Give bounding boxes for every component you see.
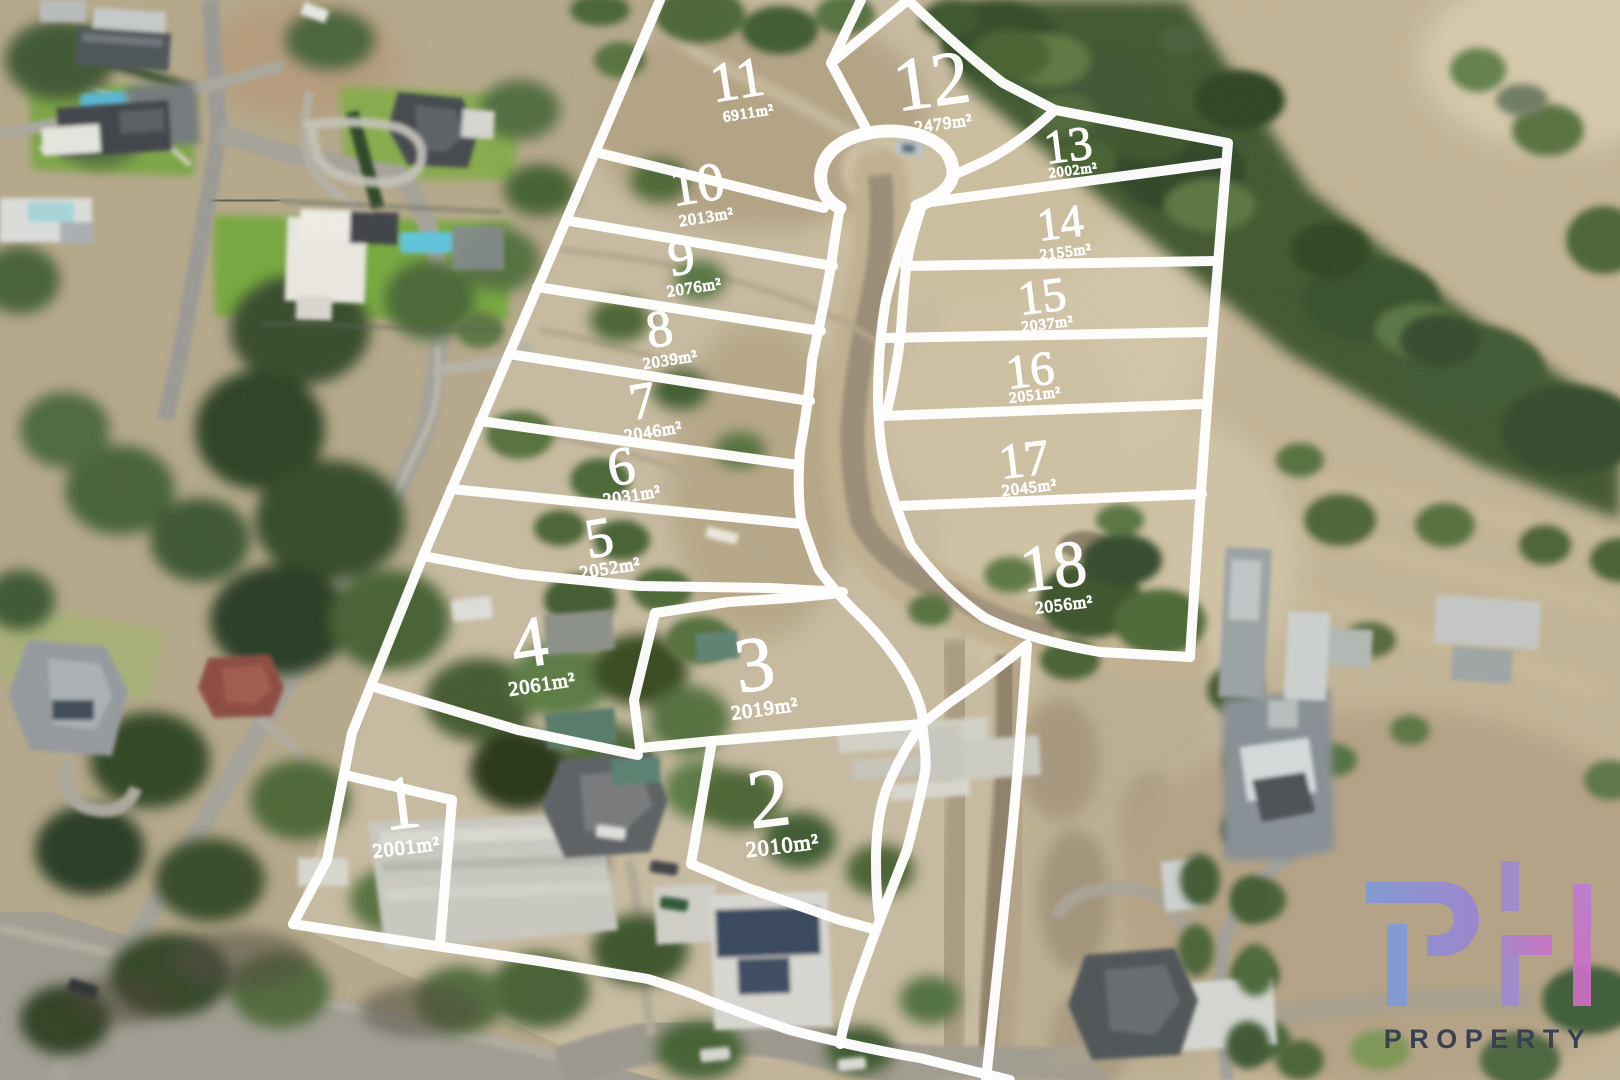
- svg-text:PROPERTY: PROPERTY: [1384, 1024, 1593, 1054]
